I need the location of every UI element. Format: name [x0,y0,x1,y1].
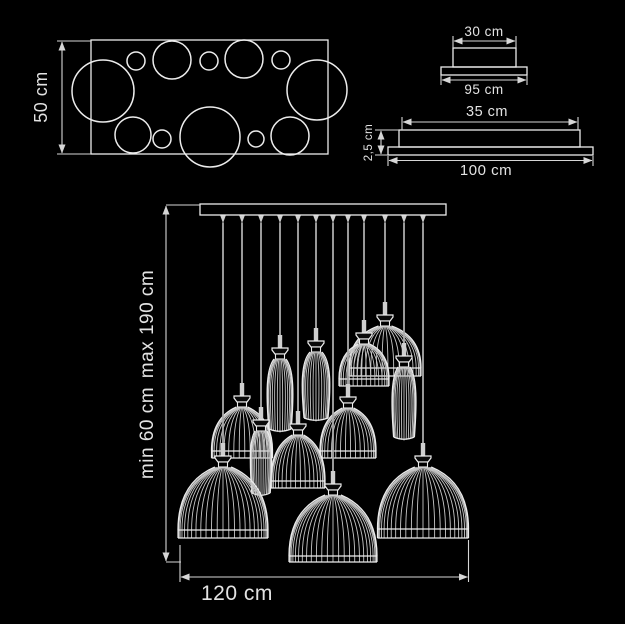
lamp-tall [267,223,293,433]
socket-neck [329,490,338,495]
cord-rod [362,320,366,333]
dim-label-100cm: 100 cm [460,162,512,179]
top-view-plate: 50 cm [31,40,347,167]
front-view-box [399,130,580,147]
cord-rod [221,443,225,456]
cord-rod [383,302,387,315]
lamp-tall [250,223,271,497]
lamp-dome [339,223,389,387]
socket-flange [253,420,269,426]
front-view: 35 cm 2,5 cm 100 cm [363,104,593,179]
dim-label-120cm: 120 cm [201,582,273,605]
elevation-view: max 190 cm min 60 cm 120 cm [137,204,469,605]
cord-rod [314,328,318,341]
diagram-page: 50 cm 30 cm 95 cm 35 cm 2,5 cm 100 cm ma… [0,0,625,624]
dim-2-5cm-extensions [375,130,399,155]
end-view: 30 cm 95 cm [441,24,527,97]
end-view-plate [441,67,527,75]
socket-flange [396,356,412,362]
end-view-box [453,48,516,67]
cord-rod [259,407,263,420]
cord-rod [278,335,282,348]
cord-rod [402,343,406,356]
socket-flange [290,424,306,430]
lamp-dome [378,223,469,539]
cord-rod [331,471,335,484]
socket-neck [344,403,353,408]
ceiling-bar [200,204,446,215]
dim-label-35cm: 35 cm [466,104,508,120]
front-view-plate [388,147,593,155]
socket-flange [415,456,431,462]
cord-rod [296,411,300,424]
dim-label-50cm: 50 cm [31,71,51,123]
socket-neck [238,402,247,407]
dim-120cm-extensions [180,540,469,582]
socket-neck [312,347,321,352]
cord-rod [421,443,425,456]
pendant-lamps [178,223,469,563]
socket-neck [276,354,285,359]
shade-rim [271,481,325,488]
cord-hangers [220,216,426,224]
dim-height-extensions [166,205,200,562]
circle-pattern [72,40,347,167]
socket-neck [360,339,369,344]
socket-flange [234,396,250,402]
shade-rim [320,451,376,458]
socket-neck [400,362,409,367]
dim-label-min-60cm: min 60 cm [137,387,158,479]
cord-rod [240,383,244,396]
socket-flange [272,348,288,354]
socket-flange [215,456,231,462]
socket-flange [377,315,393,321]
socket-neck [381,321,390,326]
dim-label-2-5cm: 2,5 cm [363,124,375,162]
cord-rod [346,384,350,397]
dim-label-95cm: 95 cm [464,82,503,97]
socket-neck [419,462,428,467]
dimension-diagram: 50 cm 30 cm 95 cm 35 cm 2,5 cm 100 cm ma… [0,0,625,624]
socket-neck [294,430,303,435]
socket-flange [325,484,341,490]
socket-flange [308,341,324,347]
lamp-dome [178,223,268,539]
socket-neck [257,426,266,431]
dim-label-max-190cm: max 190 cm [137,270,158,378]
plate-rectangle [91,40,328,154]
dim-label-30cm: 30 cm [464,24,503,39]
socket-flange [356,333,372,339]
socket-neck [219,462,228,467]
lamp-tall [302,223,330,422]
socket-flange [340,397,356,403]
